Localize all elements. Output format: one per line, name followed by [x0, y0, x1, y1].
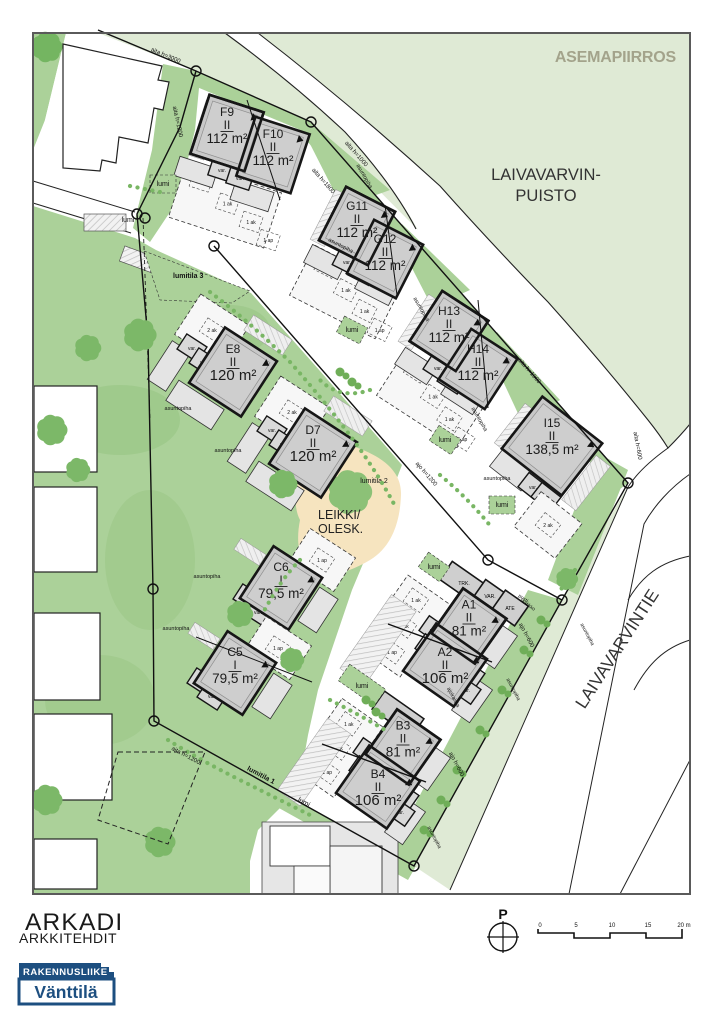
svg-text:79,5 m²: 79,5 m²: [258, 586, 304, 601]
svg-text:81 m²: 81 m²: [452, 624, 487, 639]
svg-text:F10: F10: [263, 127, 284, 141]
svg-text:120 m²: 120 m²: [290, 448, 337, 465]
svg-text:1 ak: 1 ak: [223, 202, 233, 208]
svg-text:II: II: [354, 212, 361, 226]
svg-text:106 m²: 106 m²: [422, 670, 469, 687]
svg-text:OLESK.: OLESK.: [318, 522, 363, 536]
svg-text:A1: A1: [462, 598, 477, 612]
svg-text:lumi: lumi: [496, 502, 509, 509]
svg-text:1 ap: 1 ap: [273, 646, 283, 652]
svg-text:lumi: lumi: [356, 683, 369, 690]
svg-text:1 ak: 1 ak: [341, 288, 351, 294]
svg-text:Vänttilä: Vänttilä: [34, 982, 97, 1002]
svg-text:VAR.: VAR.: [484, 594, 495, 600]
svg-text:112 m²: 112 m²: [457, 368, 499, 383]
svg-text:1 ak: 1 ak: [428, 394, 438, 400]
svg-text:I: I: [233, 658, 236, 672]
svg-text:112 m²: 112 m²: [206, 131, 248, 146]
svg-text:II: II: [446, 317, 453, 331]
svg-text:lumitila 3: lumitila 3: [173, 273, 203, 280]
svg-text:II: II: [400, 732, 407, 746]
svg-text:81 m²: 81 m²: [386, 745, 421, 760]
svg-text:var.: var.: [218, 168, 226, 174]
svg-text:II: II: [549, 429, 556, 443]
svg-text:2 ak: 2 ak: [207, 328, 217, 334]
svg-text:1 ak: 1 ak: [344, 722, 354, 728]
svg-text:D7: D7: [305, 423, 321, 437]
svg-text:II: II: [382, 245, 389, 259]
svg-text:lumi: lumi: [157, 181, 170, 188]
svg-text:lumi: lumi: [439, 437, 452, 444]
svg-text:15: 15: [645, 923, 652, 929]
svg-text:I15: I15: [544, 416, 561, 430]
svg-text:G11: G11: [346, 199, 368, 213]
svg-text:ATE: ATE: [505, 606, 515, 612]
svg-text:E8: E8: [226, 342, 241, 356]
svg-text:lumi: lumi: [122, 217, 135, 224]
svg-text:lumi: lumi: [346, 327, 359, 334]
svg-text:LAIVAVARVIN-: LAIVAVARVIN-: [491, 166, 601, 184]
svg-text:1 ak: 1 ak: [411, 598, 421, 604]
svg-text:asuntopiha: asuntopiha: [194, 574, 222, 580]
svg-text:H13: H13: [438, 304, 460, 318]
svg-text:106 m²: 106 m²: [355, 792, 402, 809]
svg-text:2 ak: 2 ak: [287, 410, 297, 416]
svg-text:asuntopiha: asuntopiha: [163, 626, 191, 632]
svg-text:asuntopiha: asuntopiha: [215, 448, 243, 454]
svg-text:2 ak: 2 ak: [543, 523, 553, 529]
svg-text:ASEMAPIIRROS: ASEMAPIIRROS: [555, 49, 677, 66]
svg-text:var.: var.: [434, 366, 442, 372]
svg-text:II: II: [475, 355, 482, 369]
svg-text:1 ap: 1 ap: [263, 238, 273, 244]
svg-text:II: II: [466, 611, 473, 625]
svg-text:112 m²: 112 m²: [428, 330, 470, 345]
svg-text:ARKKITEHDIT: ARKKITEHDIT: [19, 930, 117, 946]
svg-text:112 m²: 112 m²: [336, 225, 378, 240]
svg-text:20 m: 20 m: [677, 923, 690, 929]
svg-text:LEIKKI/: LEIKKI/: [318, 508, 361, 522]
svg-text:II: II: [270, 140, 277, 154]
svg-text:asuntopiha: asuntopiha: [165, 406, 193, 412]
svg-text:10: 10: [609, 923, 616, 929]
svg-text:II: II: [224, 118, 231, 132]
svg-text:asuntopiha: asuntopiha: [484, 476, 512, 482]
svg-text:P: P: [498, 906, 507, 922]
svg-text:RAKENNUSLIIKE: RAKENNUSLIIKE: [23, 967, 108, 978]
svg-text:1 ak: 1 ak: [360, 309, 370, 315]
svg-text:var.: var.: [268, 428, 276, 434]
svg-text:1 ak: 1 ak: [445, 417, 455, 423]
svg-text:TRK.: TRK.: [458, 581, 469, 587]
svg-text:B3: B3: [396, 719, 411, 733]
svg-text:PUISTO: PUISTO: [515, 187, 576, 205]
svg-text:F9: F9: [220, 105, 234, 119]
svg-text:var.: var.: [188, 346, 196, 352]
svg-text:B4: B4: [371, 767, 386, 781]
svg-text:1 ap: 1 ap: [317, 558, 327, 564]
svg-text:120 m²: 120 m²: [210, 367, 257, 384]
svg-text:C6: C6: [273, 560, 289, 574]
svg-text:1 ak: 1 ak: [246, 220, 256, 226]
svg-text:1 ap: 1 ap: [375, 328, 385, 334]
svg-text:112 m²: 112 m²: [252, 153, 294, 168]
svg-text:138,5 m²: 138,5 m²: [525, 442, 579, 457]
svg-text:lumi: lumi: [428, 564, 441, 571]
svg-text:79,5 m²: 79,5 m²: [212, 671, 258, 686]
